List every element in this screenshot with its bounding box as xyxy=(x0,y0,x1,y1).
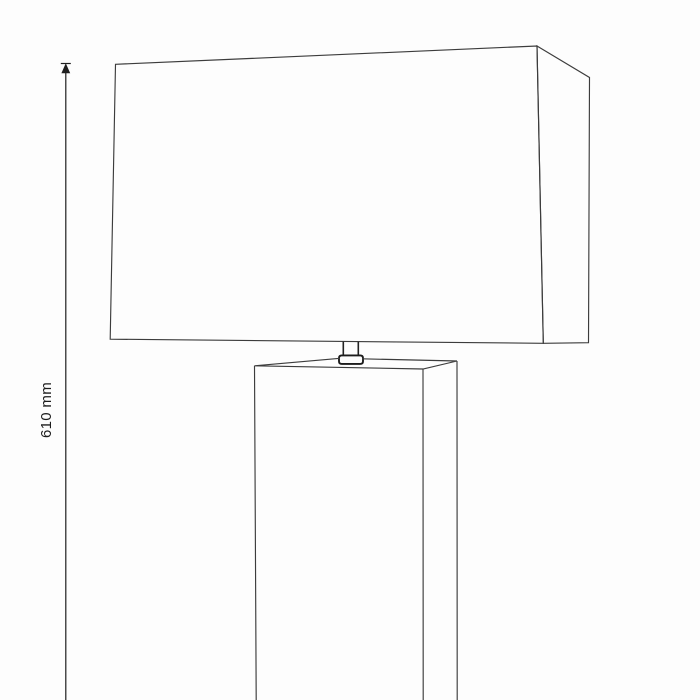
shade-side-face xyxy=(537,46,590,343)
lamp-outline xyxy=(110,46,589,700)
base-column-edges xyxy=(255,361,458,700)
dimension-arrow-up-icon xyxy=(62,64,70,73)
neck-collar xyxy=(339,355,363,364)
dimension-annotation: 610 mm xyxy=(38,64,71,700)
dimension-label: 610 mm xyxy=(38,382,55,438)
shade-front-face xyxy=(110,46,543,343)
lamp-technical-drawing: 610 mm xyxy=(0,0,700,700)
neck-stem xyxy=(343,342,358,356)
drawing-canvas: 610 mm xyxy=(0,0,700,700)
